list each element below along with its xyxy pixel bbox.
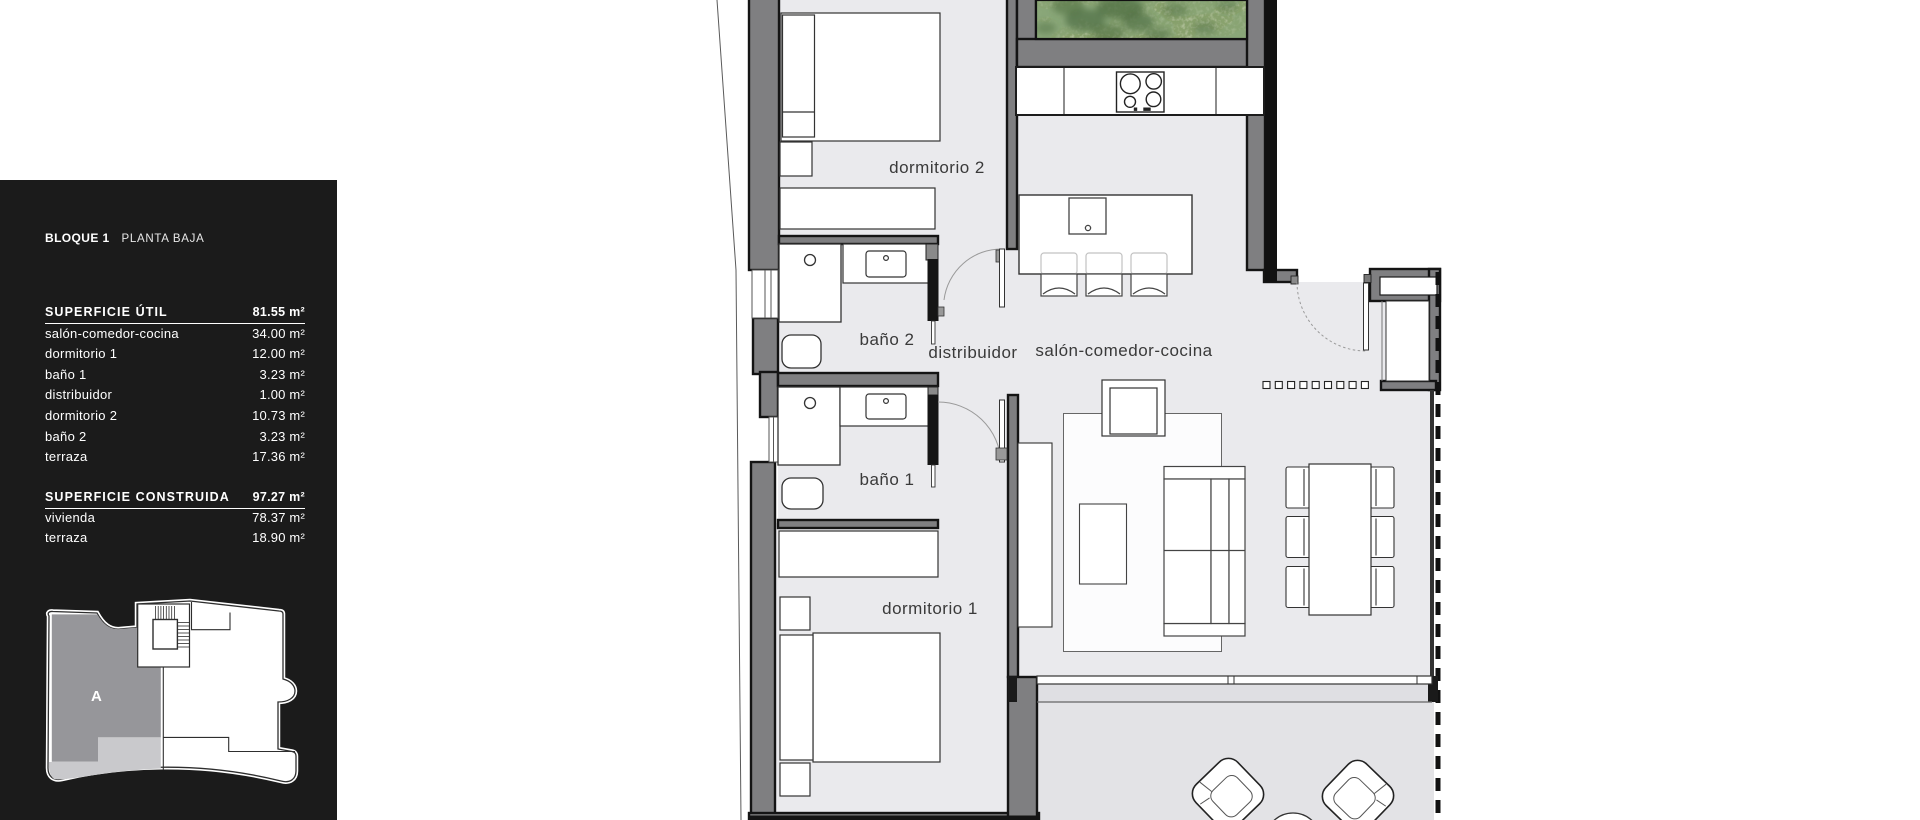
svg-text:baño 1: baño 1 [860,470,915,489]
svg-text:dormitorio 1: dormitorio 1 [882,599,978,618]
svg-text:baño 2: baño 2 [860,330,915,349]
svg-text:distribuidor: distribuidor [928,343,1017,362]
svg-text:dormitorio 2: dormitorio 2 [889,158,985,177]
svg-text:A: A [91,688,102,705]
svg-text:salón-comedor-cocina: salón-comedor-cocina [1035,341,1212,360]
